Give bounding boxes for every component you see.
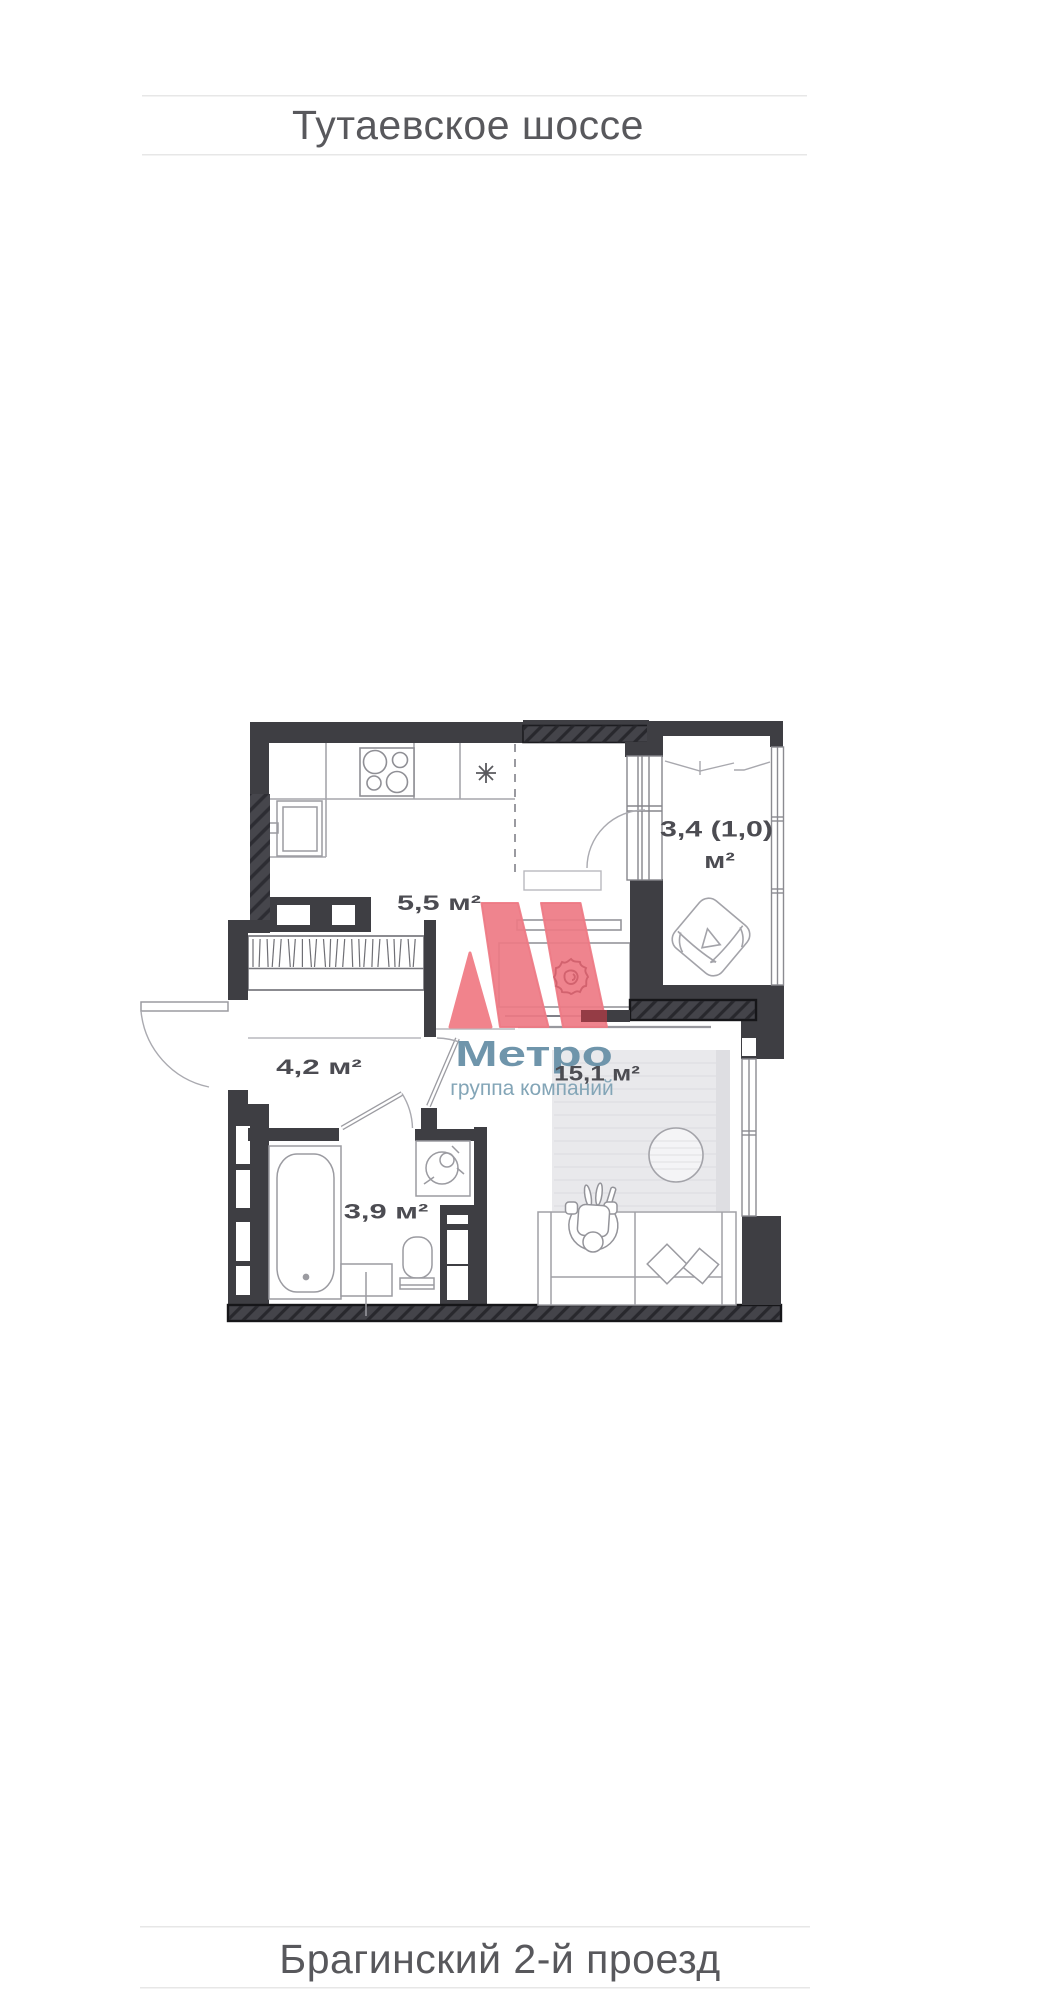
svg-text:Тутаевское шоссе: Тутаевское шоссе xyxy=(292,102,644,148)
svg-text:3,9 м²: 3,9 м² xyxy=(344,1199,429,1223)
svg-text:3,4 (1,0): 3,4 (1,0) xyxy=(660,817,773,842)
svg-text:м²: м² xyxy=(704,849,735,873)
svg-text:Брагинский 2-й проезд: Брагинский 2-й проезд xyxy=(279,1936,720,1982)
svg-text:5,5 м²: 5,5 м² xyxy=(397,891,481,915)
svg-text:4,2 м²: 4,2 м² xyxy=(276,1055,362,1079)
svg-text:15,1 м²: 15,1 м² xyxy=(554,1063,640,1086)
